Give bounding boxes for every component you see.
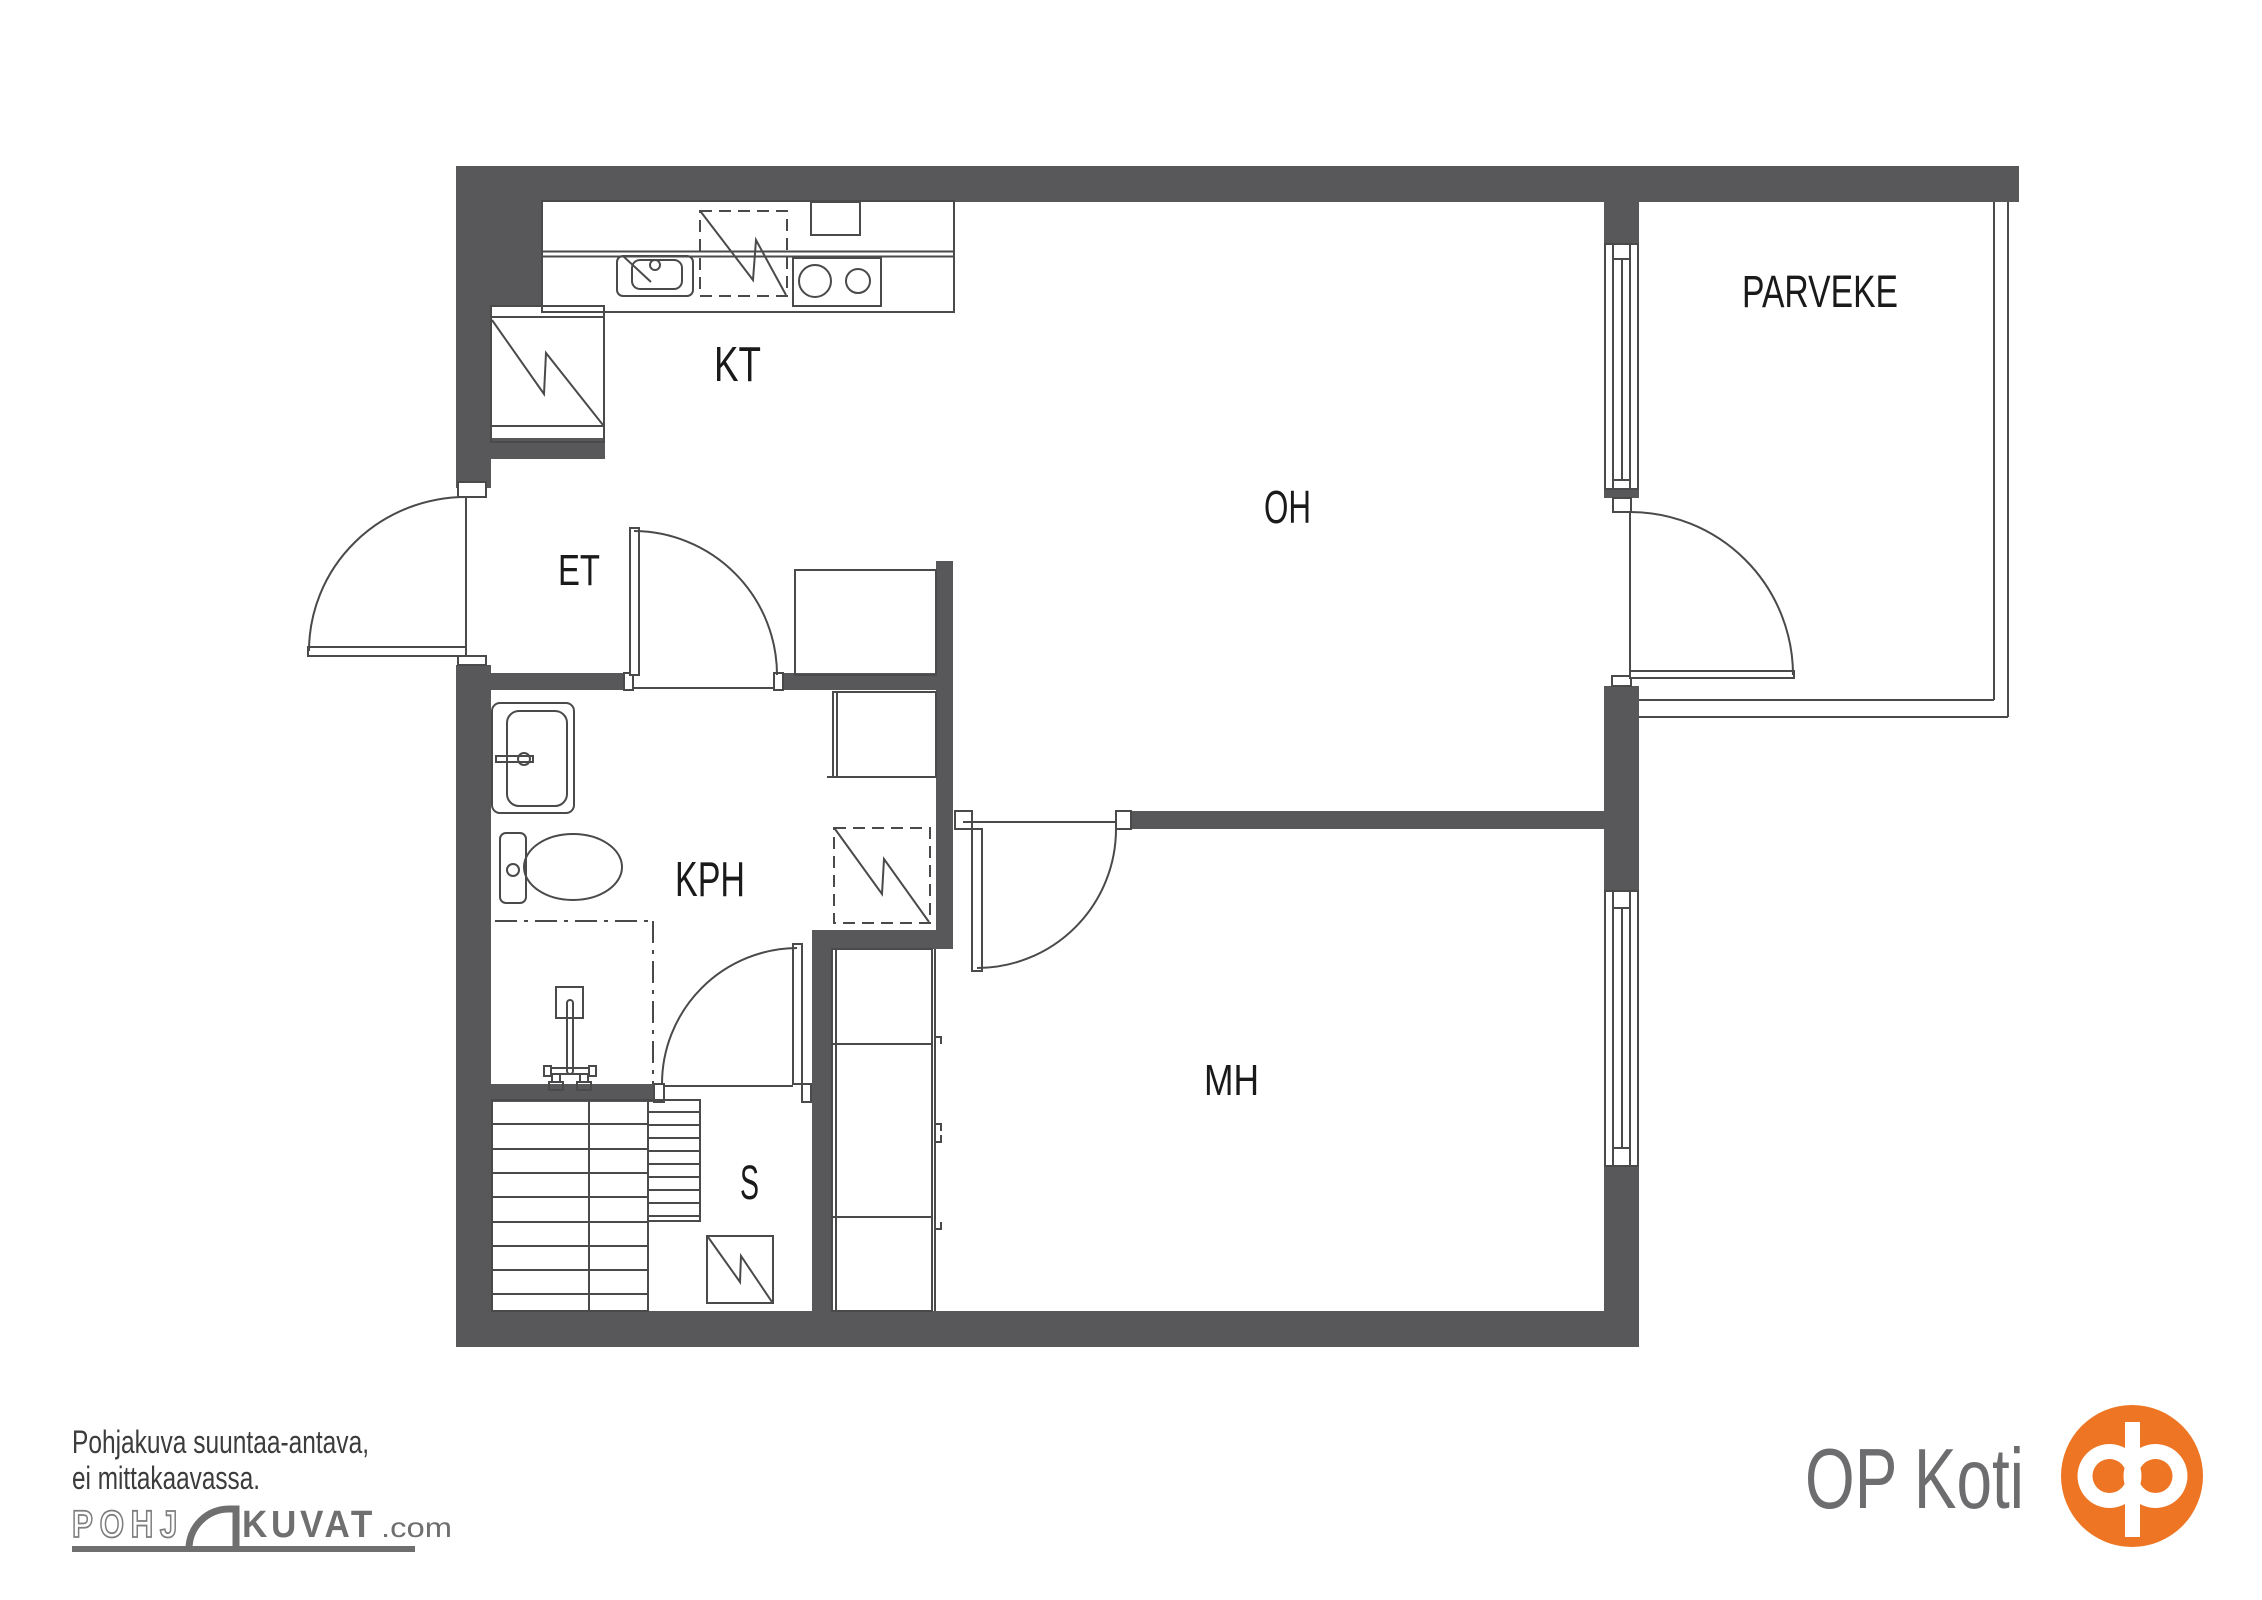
svg-text:KT: KT [714,338,761,392]
svg-text:OP Koti: OP Koti [1805,1432,2024,1527]
svg-text:ei mittakaavassa.: ei mittakaavassa. [72,1460,260,1496]
svg-text:S: S [740,1157,759,1210]
svg-text:KUVAT: KUVAT [242,1504,376,1546]
svg-text:Pohjakuva suuntaa-antava,: Pohjakuva suuntaa-antava, [72,1424,369,1460]
svg-text:.com: .com [381,1512,452,1543]
svg-text:ET: ET [558,546,600,595]
svg-text:KPH: KPH [675,853,745,907]
svg-text:PARVEKE: PARVEKE [1742,266,1898,317]
svg-text:MH: MH [1204,1056,1259,1105]
svg-text:OH: OH [1264,481,1311,533]
svg-text:POHJ: POHJ [72,1504,184,1546]
